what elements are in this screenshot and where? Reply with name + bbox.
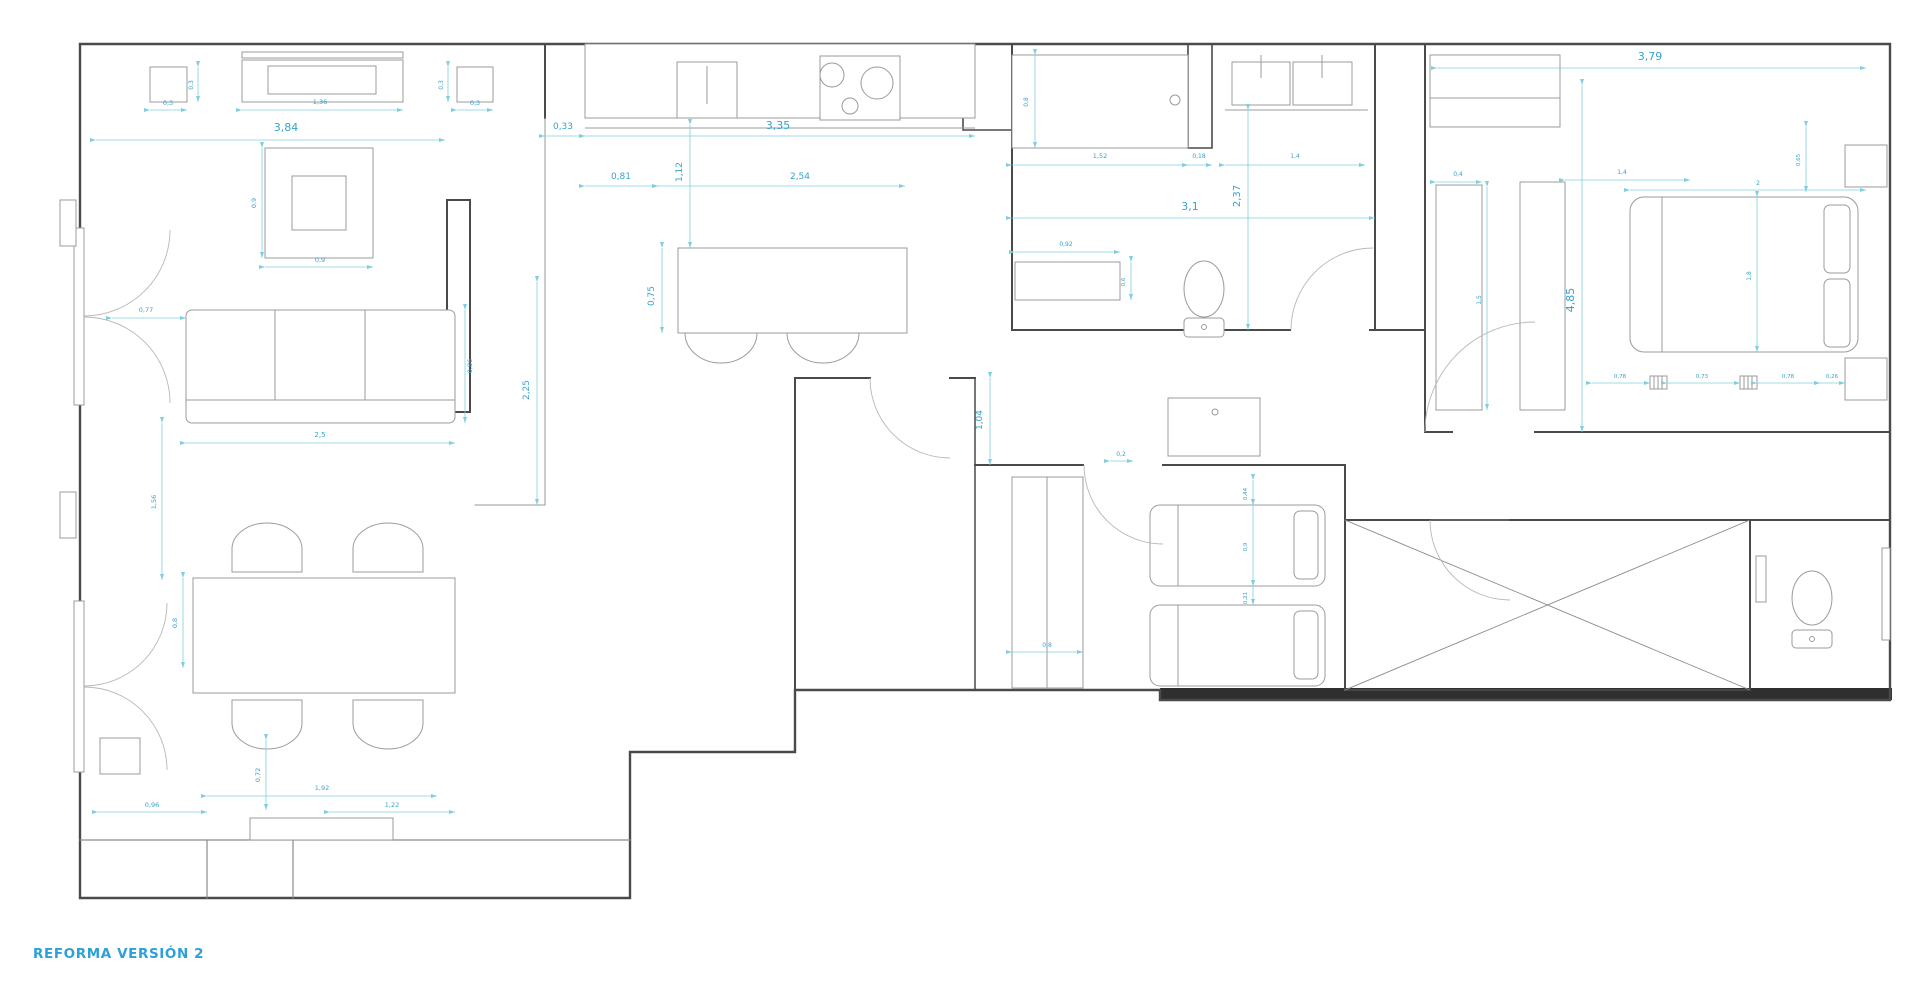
window-frame-1 (74, 228, 84, 405)
bed2b-pillow (1294, 611, 1318, 679)
dining-chair-3 (232, 700, 302, 749)
kitchen-counter (585, 44, 975, 118)
side-table-2 (457, 67, 493, 102)
kitchen-island (678, 248, 907, 333)
bed1-pillow-b (1824, 279, 1850, 347)
dining-chair-4 (353, 700, 423, 749)
shower-partition (1188, 44, 1212, 148)
shower-tray (1012, 55, 1188, 148)
tv-soundbar (242, 52, 403, 58)
corridor-partition (475, 118, 545, 505)
tv-screen (268, 66, 376, 94)
side-table-1 (150, 67, 187, 102)
stool-1 (685, 333, 757, 363)
french-window-1-leaf-a (84, 230, 170, 316)
toilet2-bowl (1792, 571, 1832, 625)
dim-label: 1,04 (975, 410, 985, 430)
dressing-door (1430, 520, 1510, 600)
console-shelf (250, 818, 393, 840)
shutter-box-2 (60, 492, 76, 538)
dining-chair-1 (232, 523, 302, 572)
window-sill (100, 738, 140, 774)
coffee-table-inner (292, 176, 346, 230)
window-frame-2 (74, 601, 84, 772)
dim-label: 0,3 (163, 99, 173, 107)
dim-label: 0,9 (315, 256, 325, 264)
dim-label: 2,37 (1232, 185, 1243, 207)
burner-3 (842, 98, 858, 114)
dim-label: 1,12 (675, 162, 685, 182)
dim-label: 2,5 (314, 431, 325, 439)
burner-2 (861, 67, 893, 99)
dim-label: 0,8 (1042, 642, 1052, 649)
floor-plan: 0,31,360,30,30,33,840,90,90,770,862,51,5… (0, 0, 1920, 992)
dim-label: 0,78 (1782, 374, 1795, 380)
dim-label: 1,36 (313, 98, 327, 106)
dim-label: 1,92 (315, 784, 329, 792)
french-window-2-leaf-a (84, 603, 167, 686)
bed2a-pillow (1294, 511, 1318, 579)
plan-title: REFORMA VERSIÓN 2 (33, 946, 204, 962)
bath1-cabinet (1015, 262, 1120, 300)
dim-label: 2,25 (522, 380, 532, 400)
dim-label: 0,33 (553, 122, 573, 132)
dim-label: 3,35 (766, 119, 791, 132)
floor-plan-page: 0,31,360,30,30,33,840,90,90,770,862,51,5… (0, 0, 1920, 992)
dim-label: 2 (1756, 180, 1760, 187)
dim-label: 0,18 (1192, 153, 1206, 160)
dim-label: 0,81 (611, 172, 631, 182)
dim-label: 0,3 (470, 99, 480, 107)
dim-label: 3,1 (1181, 200, 1199, 213)
dim-label: 1,4 (1617, 169, 1627, 176)
dim-label: 2,54 (790, 172, 810, 182)
dim-label: 0,9 (250, 198, 258, 208)
dim-label: 4,85 (1564, 288, 1577, 313)
burner-1 (820, 63, 844, 87)
dim-label: 1,22 (385, 801, 399, 809)
dim-label: 0,4 (1453, 171, 1463, 178)
dim-label: 0,65 (1796, 153, 1802, 166)
dim-label: 1,52 (1093, 152, 1107, 160)
toilet2-button (1810, 637, 1815, 642)
dim-label: 0,75 (647, 286, 657, 306)
dim-label: 0,44 (1243, 487, 1249, 500)
bath1-door (1291, 248, 1373, 330)
dim-label: 0,8 (171, 618, 179, 628)
dim-label: 0,96 (145, 801, 159, 809)
toilet1-bowl (1184, 261, 1224, 317)
shutter-box-1 (60, 200, 76, 246)
dim-label: 1,4 (1290, 153, 1300, 160)
toilet1-button (1202, 325, 1207, 330)
dim-label: 0,78 (1614, 374, 1627, 380)
dining-table (193, 578, 455, 693)
nightstand-b (1845, 358, 1887, 400)
dim-label: 0,8 (1023, 97, 1030, 107)
dim-label: 0,72 (254, 768, 262, 782)
dim-label: 1,8 (1746, 271, 1753, 281)
hall-console-knob (1212, 409, 1218, 415)
shower-drain (1170, 95, 1180, 105)
dim-label: 0,3 (188, 80, 195, 90)
dressing-cross (1345, 520, 1750, 690)
bed1-pillow-a (1824, 205, 1850, 273)
bath2-radiator (1756, 556, 1766, 602)
dim-label: 3,84 (274, 121, 299, 134)
dim-label: 0,2 (1116, 451, 1126, 458)
dim-label: 0,86 (466, 359, 474, 373)
studio-door (870, 378, 950, 458)
dim-label: 0,9 (1243, 542, 1249, 551)
french-window-1-leaf-b (84, 317, 170, 403)
dim-label: 0,21 (1243, 592, 1249, 604)
dim-label: 1,56 (150, 495, 158, 509)
bedroom1-closet-top (1430, 55, 1560, 127)
hall-console (1168, 398, 1260, 456)
dim-label: 0,73 (1696, 374, 1709, 380)
bedroom1-wardrobe-b (1520, 182, 1565, 410)
bath2-window-strip (1882, 548, 1890, 640)
stool-2 (787, 333, 859, 363)
dim-label: 3,79 (1638, 50, 1663, 63)
dim-label: 1,5 (1476, 295, 1483, 305)
dim-label: 0,3 (438, 80, 445, 90)
dim-label: 0,26 (1826, 374, 1839, 380)
sofa (186, 310, 455, 423)
nightstand-a (1845, 145, 1887, 187)
dim-label: 0,77 (139, 306, 153, 314)
dining-chair-2 (353, 523, 423, 572)
dim-label: 0,92 (1059, 241, 1073, 248)
dim-label: 0,6 (1121, 277, 1127, 286)
